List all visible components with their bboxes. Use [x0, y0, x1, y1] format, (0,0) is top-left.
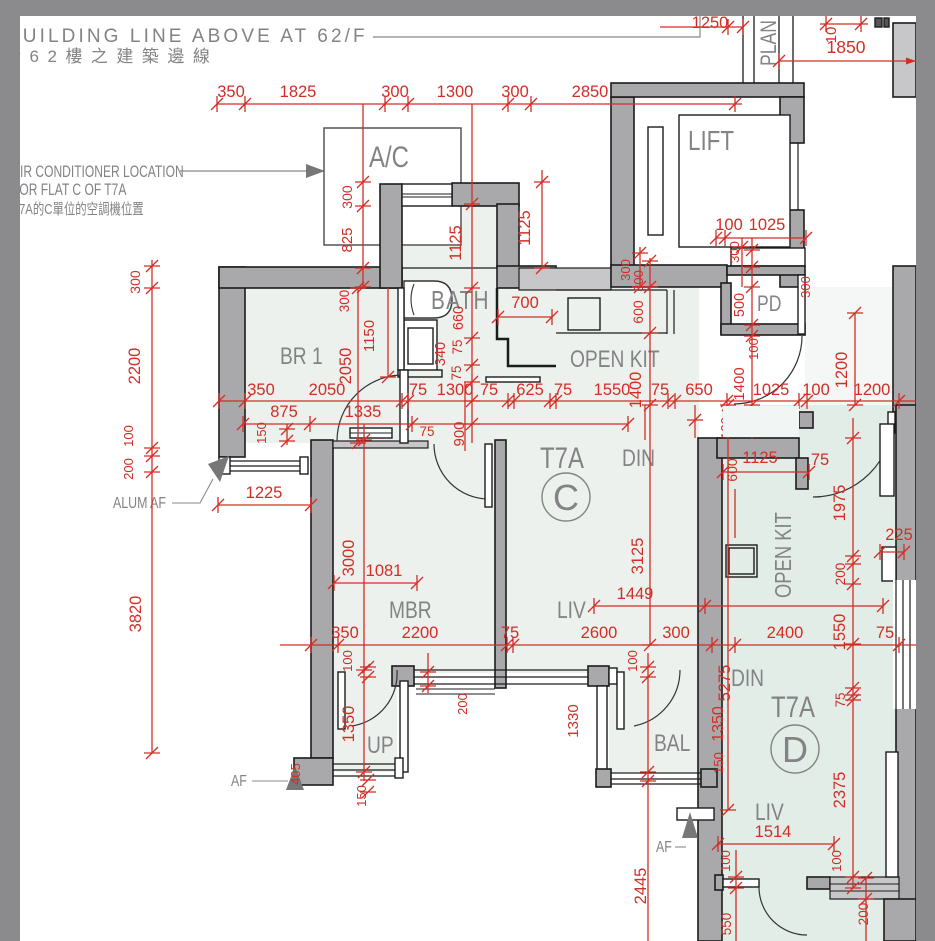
svg-text:1350: 1350 [340, 706, 358, 743]
svg-text:500: 500 [732, 293, 748, 317]
svg-text:600: 600 [630, 300, 646, 324]
svg-text:825: 825 [339, 227, 356, 252]
svg-text:T7A: T7A [771, 689, 816, 723]
svg-text:600: 600 [724, 458, 740, 482]
svg-text:550: 550 [719, 913, 734, 936]
svg-text:1125: 1125 [516, 210, 534, 245]
svg-text:於62樓之建築邊線: 於62樓之建築邊線 [4, 47, 218, 66]
svg-text:200: 200 [455, 693, 470, 715]
svg-text:FOR FLAT C OF T7A: FOR FLAT C OF T7A [12, 181, 127, 199]
svg-text:405: 405 [288, 763, 303, 785]
svg-text:T7A的C單位的空調機位置: T7A的C單位的空調機位置 [12, 200, 144, 217]
svg-text:300: 300 [798, 276, 813, 298]
svg-text:1250: 1250 [692, 14, 729, 32]
svg-text:900: 900 [451, 421, 468, 446]
svg-text:300: 300 [127, 270, 143, 294]
svg-text:1330: 1330 [565, 704, 582, 737]
svg-text:1200: 1200 [833, 352, 851, 389]
svg-text:2400: 2400 [767, 624, 804, 642]
svg-text:PLAN: PLAN [757, 20, 781, 66]
svg-text:1125: 1125 [447, 225, 465, 260]
svg-text:OPEN KIT: OPEN KIT [771, 512, 796, 598]
svg-text:1150: 1150 [361, 320, 378, 352]
svg-text:1125: 1125 [742, 449, 777, 467]
svg-text:100: 100 [715, 216, 743, 234]
svg-text:5275: 5275 [716, 665, 734, 702]
svg-text:3000: 3000 [340, 540, 358, 577]
svg-text:BAL: BAL [654, 729, 690, 757]
svg-text:1300: 1300 [437, 381, 474, 399]
svg-text:2600: 2600 [581, 624, 618, 642]
svg-text:300: 300 [501, 83, 529, 101]
svg-text:350: 350 [331, 624, 359, 642]
svg-text:1081: 1081 [366, 562, 403, 580]
svg-text:D: D [782, 729, 808, 770]
svg-text:1400: 1400 [627, 372, 645, 409]
svg-text:BUILDING LINE ABOVE AT 62/F: BUILDING LINE ABOVE AT 62/F [7, 26, 368, 47]
svg-text:LIV: LIV [755, 798, 784, 826]
svg-text:200: 200 [856, 903, 871, 926]
svg-text:1350: 1350 [710, 706, 727, 742]
svg-text:2375: 2375 [831, 772, 849, 809]
svg-text:75: 75 [876, 624, 894, 642]
svg-text:2200: 2200 [402, 624, 439, 642]
svg-text:340: 340 [433, 342, 449, 366]
svg-text:3820: 3820 [127, 596, 145, 633]
svg-text:1550: 1550 [831, 614, 849, 651]
svg-text:300: 300 [727, 241, 742, 263]
svg-text:350: 350 [247, 381, 275, 399]
svg-text:150: 150 [354, 785, 369, 807]
svg-text:MBR: MBR [389, 596, 432, 624]
svg-text:1514: 1514 [755, 823, 792, 841]
svg-text:75: 75 [651, 381, 669, 399]
svg-text:1025: 1025 [749, 216, 786, 234]
svg-text:875: 875 [270, 403, 298, 421]
svg-text:PD: PD [757, 292, 781, 316]
svg-text:2850: 2850 [572, 83, 609, 101]
svg-text:300: 300 [662, 624, 690, 642]
svg-text:75: 75 [419, 424, 434, 439]
svg-text:C: C [553, 477, 579, 518]
svg-text:75: 75 [450, 339, 465, 354]
svg-text:A/C: A/C [369, 139, 409, 173]
svg-text:300: 300 [337, 290, 352, 313]
svg-text:660: 660 [451, 306, 467, 330]
svg-text:300: 300 [631, 270, 646, 292]
svg-text:75: 75 [833, 692, 848, 707]
svg-text:1225: 1225 [246, 484, 283, 502]
svg-text:DIN: DIN [731, 664, 764, 692]
svg-text:2200: 2200 [126, 348, 144, 385]
svg-text:OPEN KIT: OPEN KIT [570, 345, 660, 373]
svg-text:T7A: T7A [540, 440, 585, 474]
svg-text:100: 100 [121, 425, 136, 447]
svg-text:75: 75 [409, 381, 427, 399]
svg-text:2050: 2050 [337, 348, 355, 385]
svg-text:2445: 2445 [632, 868, 650, 905]
svg-text:LIFT: LIFT [688, 126, 734, 157]
svg-text:75: 75 [811, 451, 829, 469]
svg-text:100: 100 [746, 338, 761, 360]
svg-text:LIV: LIV [557, 596, 586, 624]
svg-text:350: 350 [217, 83, 245, 101]
svg-text:1335: 1335 [345, 403, 382, 421]
svg-text:200: 200 [833, 563, 848, 586]
svg-text:75: 75 [449, 365, 464, 380]
svg-text:UP: UP [367, 731, 394, 759]
svg-text:700: 700 [511, 294, 539, 312]
svg-text:100: 100 [340, 650, 355, 672]
svg-text:1300: 1300 [437, 83, 474, 101]
svg-text:AF: AF [231, 772, 247, 790]
svg-text:100: 100 [829, 850, 844, 872]
svg-text:75: 75 [480, 381, 498, 399]
svg-text:75: 75 [501, 624, 519, 642]
svg-text:BR 1: BR 1 [280, 342, 323, 370]
svg-text:100: 100 [718, 850, 733, 872]
svg-text:100: 100 [802, 381, 830, 399]
svg-text:650: 650 [685, 381, 713, 399]
svg-text:10: 10 [823, 27, 840, 44]
svg-text:AIR CONDITIONER LOCATION: AIR CONDITIONER LOCATION [12, 163, 184, 181]
svg-text:225: 225 [885, 526, 913, 544]
svg-text:100: 100 [625, 650, 640, 672]
svg-text:1550: 1550 [594, 381, 631, 399]
svg-text:1400: 1400 [731, 367, 748, 400]
svg-text:2050: 2050 [309, 381, 346, 399]
svg-text:AF: AF [656, 838, 672, 856]
svg-text:3125: 3125 [629, 538, 647, 575]
svg-text:1025: 1025 [753, 381, 790, 399]
svg-text:150: 150 [254, 422, 269, 444]
svg-text:75: 75 [554, 381, 572, 399]
svg-text:300: 300 [339, 185, 355, 209]
svg-text:150: 150 [711, 752, 726, 774]
svg-text:300: 300 [381, 83, 409, 101]
svg-text:1200: 1200 [854, 381, 891, 399]
svg-text:ALUM AF: ALUM AF [113, 494, 166, 512]
svg-text:200: 200 [121, 458, 136, 480]
svg-text:625: 625 [516, 381, 544, 399]
svg-text:1825: 1825 [280, 83, 317, 101]
svg-text:1975: 1975 [831, 485, 849, 522]
svg-text:1449: 1449 [617, 585, 654, 603]
